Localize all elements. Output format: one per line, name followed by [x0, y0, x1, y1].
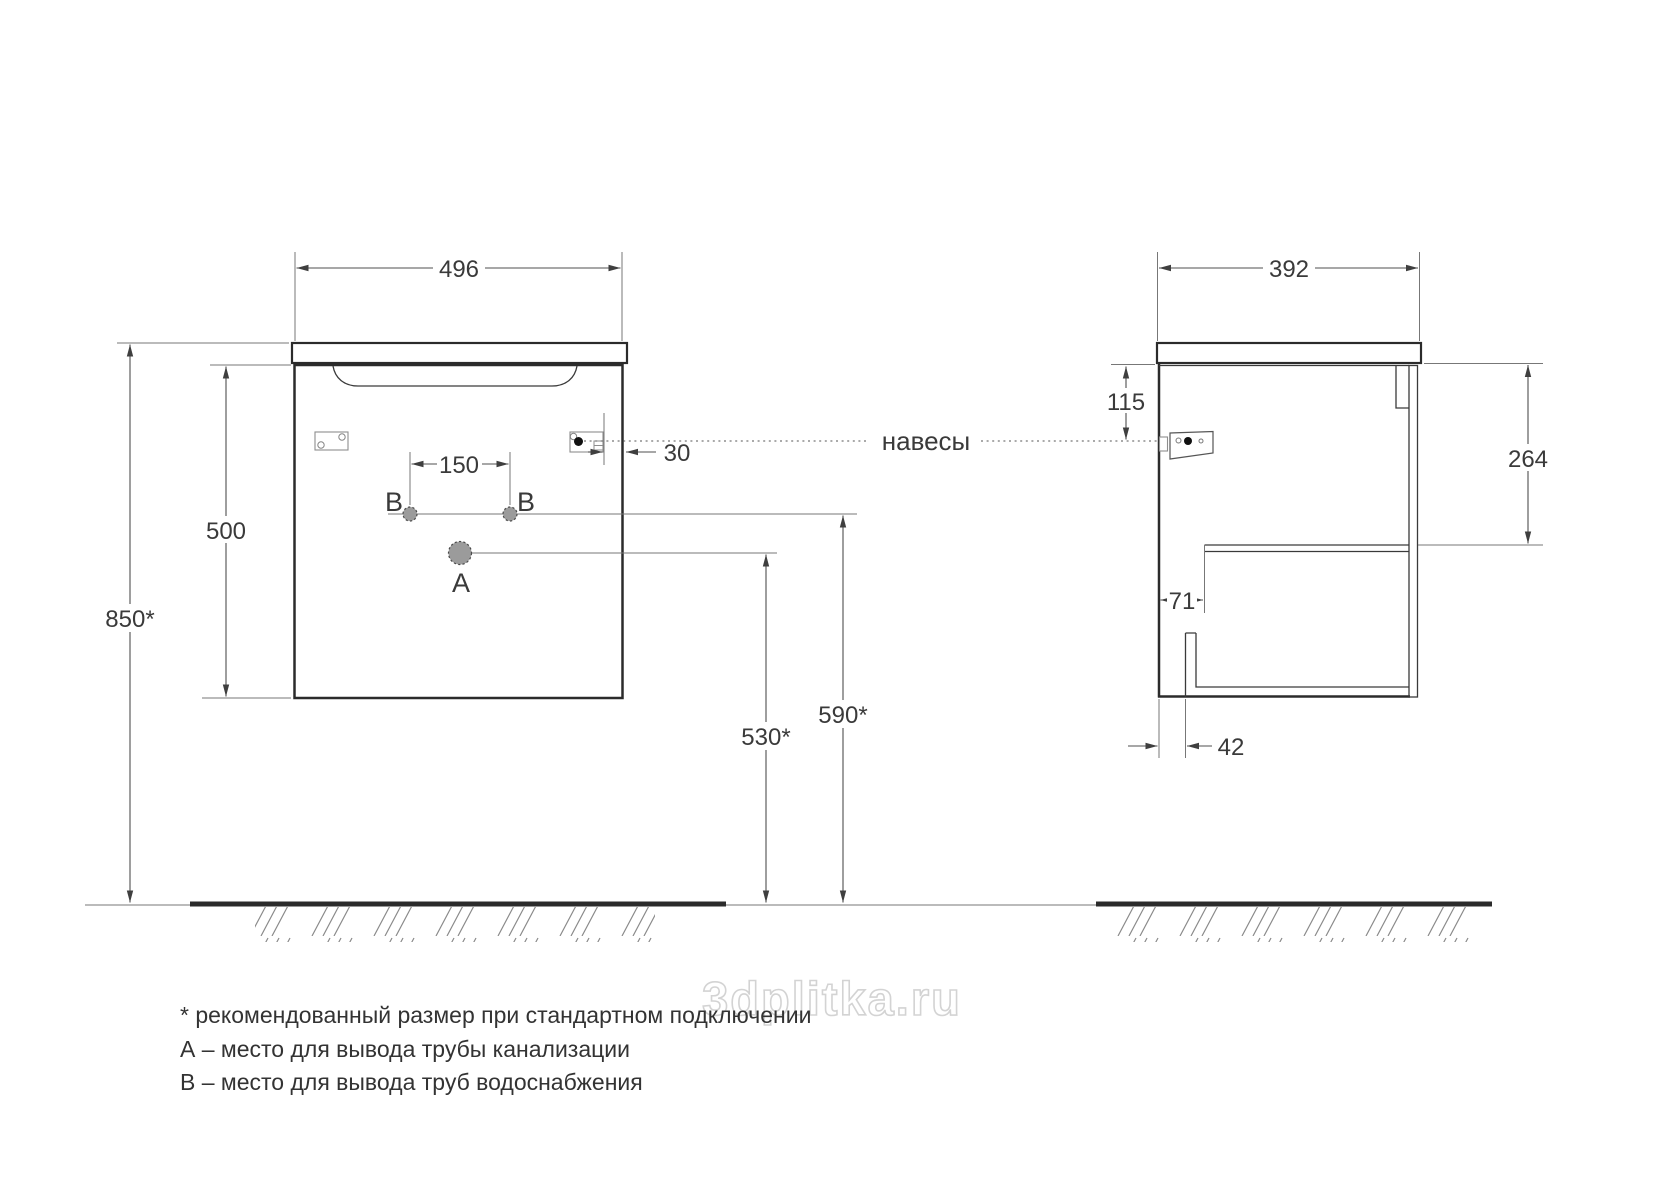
side-door-bracket: [1396, 366, 1409, 409]
technical-drawing-page: B B A навесы 496 500 850* 150: [0, 0, 1667, 1200]
side-countertop: [1157, 343, 1421, 363]
floor: [85, 904, 1492, 942]
hinge-plate-left: [315, 432, 348, 450]
side-shelf-inset-dim: 71: [1169, 588, 1196, 615]
front-mount-height-dim: 850*: [105, 606, 154, 633]
hanger-point-icon: [574, 437, 583, 446]
point-a-label: A: [452, 568, 470, 598]
side-dimensions: 392 115 264 71 42: [1103, 252, 1555, 761]
side-hanger: [1160, 432, 1214, 460]
front-dimensions: 496 500 850* 150 30 590* 530*: [100, 252, 873, 903]
front-b-spacing-dim: 150: [439, 452, 479, 479]
side-inner-height-dim: 264: [1508, 446, 1548, 473]
point-b-left-label: B: [385, 487, 403, 517]
water-supply-point-right: [503, 507, 517, 521]
front-width-dim: 496: [439, 256, 479, 283]
front-b-height-dim: 590*: [818, 702, 867, 729]
footnotes: * рекомендованный размер при стандартном…: [180, 1002, 811, 1095]
vanity-dimension-drawing: B B A навесы 496 500 850* 150: [0, 0, 1667, 1200]
side-view: [1157, 343, 1421, 698]
side-door-panel: [1409, 366, 1418, 698]
hanger-wall-clip: [1160, 437, 1168, 451]
front-view: B B A: [292, 343, 857, 698]
hanger-bracket: [1170, 432, 1213, 460]
front-hinge-plate-right: [570, 432, 603, 452]
front-hinge-plate-left: [315, 432, 348, 450]
front-height-dim: 500: [206, 518, 246, 545]
side-depth-dim: 392: [1269, 256, 1309, 283]
water-supply-point-left: [403, 507, 417, 521]
front-a-height-dim: 530*: [741, 724, 790, 751]
front-hanger-inset-dim: 30: [664, 440, 691, 467]
side-bottom-inset-dim: 42: [1218, 734, 1245, 761]
footnote-recommended-size: * рекомендованный размер при стандартном…: [180, 1002, 811, 1028]
hangers-label: навесы: [882, 426, 971, 456]
drain-point: [449, 542, 472, 565]
side-hanger-drop-dim: 115: [1107, 389, 1145, 416]
floor-hatching-left: [255, 907, 655, 942]
footnote-point-b: В – место для вывода труб водоснабжения: [180, 1069, 643, 1095]
point-b-right-label: B: [517, 487, 535, 517]
footnote-point-a: А – место для вывода трубы канализации: [180, 1036, 630, 1062]
front-handle-recess: [333, 366, 577, 386]
front-cabinet-body: [295, 365, 623, 698]
floor-hatching-right: [1100, 907, 1484, 942]
side-bottom-recess: [1186, 633, 1410, 697]
hanger-point-icon: [1184, 437, 1192, 445]
front-countertop: [292, 343, 627, 363]
